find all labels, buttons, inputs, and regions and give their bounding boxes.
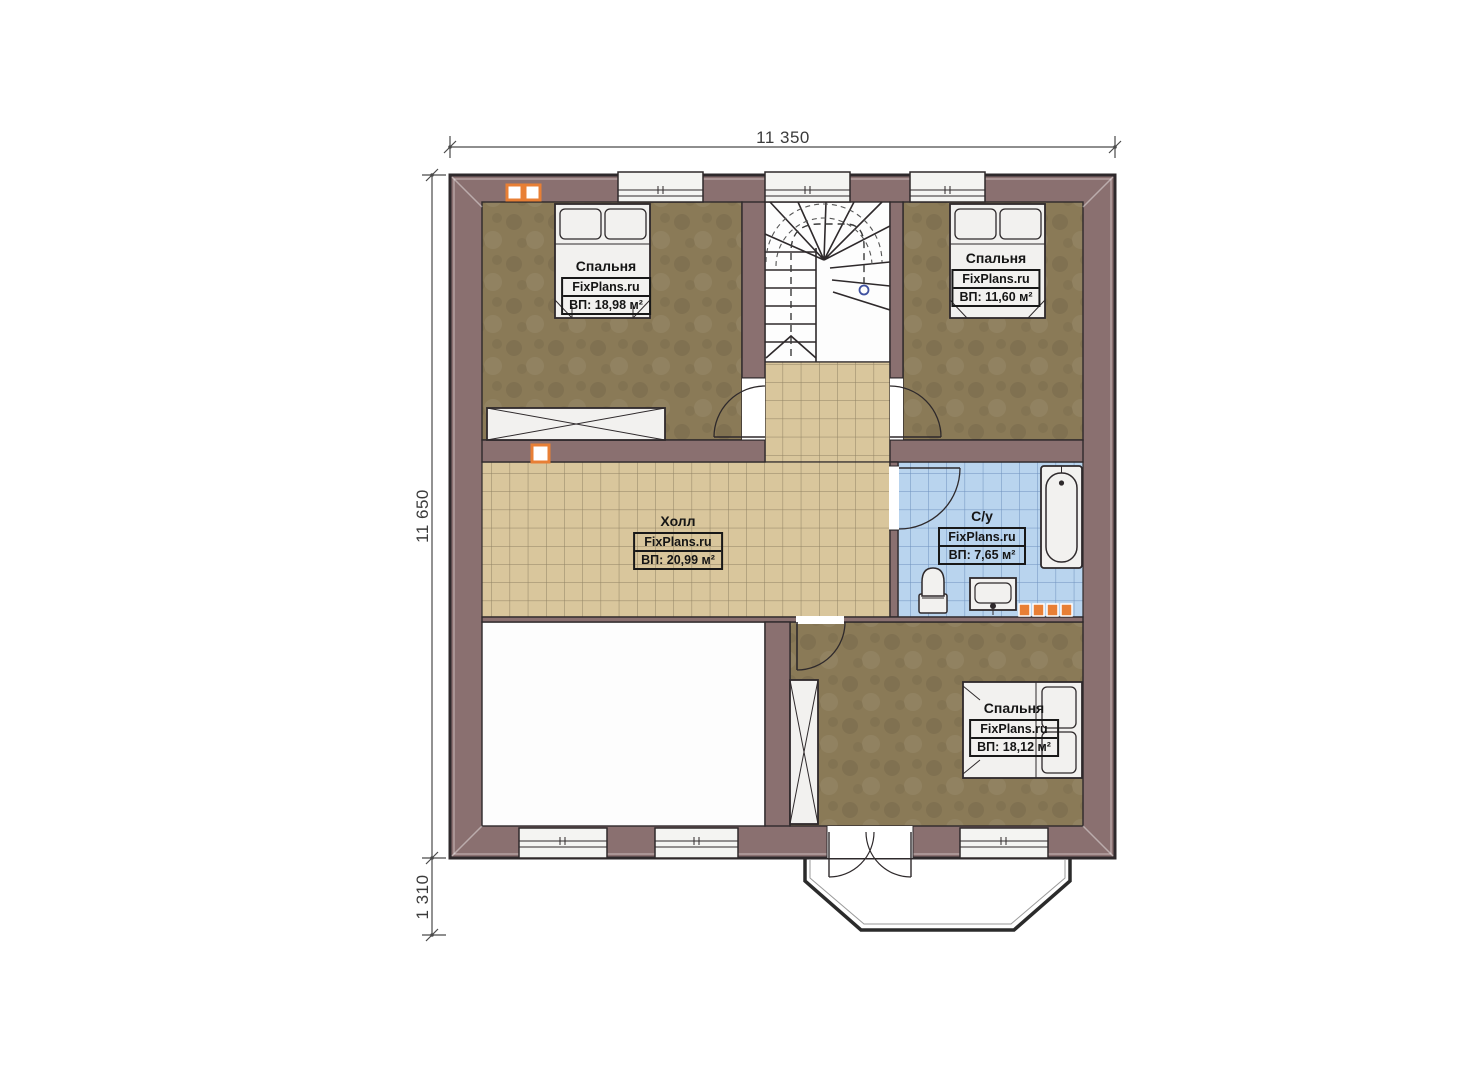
room-info-box: FixPlans.ru ВП: 20,99 м² [633,532,723,570]
window-top-1 [618,172,703,202]
room-label-bedroom-tr: Спальня FixPlans.ru ВП: 11,60 м² [951,250,1040,307]
brand-watermark: FixPlans.ru [635,534,721,550]
corridor-floor [765,362,890,462]
stairwell-floor [765,202,890,362]
room-area: ВП: 11,60 м² [953,287,1038,305]
dimension-left-label: 11 650 [413,489,433,543]
void-room-floor [482,622,765,826]
wardrobe-br [790,680,818,824]
dimension-bottom-left-label: 1 310 [413,874,433,919]
brand-watermark: FixPlans.ru [953,271,1038,287]
flue-mid-wall [532,445,549,462]
brand-watermark: FixPlans.ru [563,279,649,295]
room-label-hall: Холл FixPlans.ru ВП: 20,99 м² [633,513,723,570]
window-top-2 [765,172,850,202]
room-name: Спальня [969,700,1059,716]
room-info-box: FixPlans.ru ВП: 18,12 м² [969,719,1059,757]
floorplan-drawing [0,0,1473,1080]
room-area: ВП: 18,12 м² [971,737,1057,755]
wardrobe-tl [487,408,665,440]
room-label-bedroom-br: Спальня FixPlans.ru ВП: 18,12 м² [969,700,1059,757]
bay-balcony [805,858,1070,930]
room-info-box: FixPlans.ru ВП: 18,98 м² [561,277,651,315]
window-bottom-2 [655,828,738,858]
window-bottom-1 [519,828,607,858]
room-area: ВП: 20,99 м² [635,550,721,568]
dimension-top-label: 11 350 [756,128,810,148]
sink [970,578,1016,615]
room-info-box: FixPlans.ru ВП: 11,60 м² [951,269,1040,307]
room-info-box: FixPlans.ru ВП: 7,65 м² [938,527,1026,565]
brand-watermark: FixPlans.ru [940,529,1024,545]
bathtub [1041,466,1082,568]
floorplan-canvas: 11 350 11 650 1 310 Спальня FixPlans.ru … [0,0,1473,1080]
flue-top-left [507,185,540,200]
toilet [919,568,947,613]
window-bottom-3 [960,828,1048,858]
room-area: ВП: 18,98 м² [563,295,649,313]
window-top-3 [910,172,985,202]
room-label-bathroom: С/у FixPlans.ru ВП: 7,65 м² [938,508,1026,565]
room-name: Спальня [561,258,651,274]
room-label-bedroom-tl: Спальня FixPlans.ru ВП: 18,98 м² [561,258,651,315]
room-area: ВП: 7,65 м² [940,545,1024,563]
room-name: Холл [633,513,723,529]
room-name: Спальня [951,250,1040,266]
room-name: С/у [938,508,1026,524]
brand-watermark: FixPlans.ru [971,721,1057,737]
